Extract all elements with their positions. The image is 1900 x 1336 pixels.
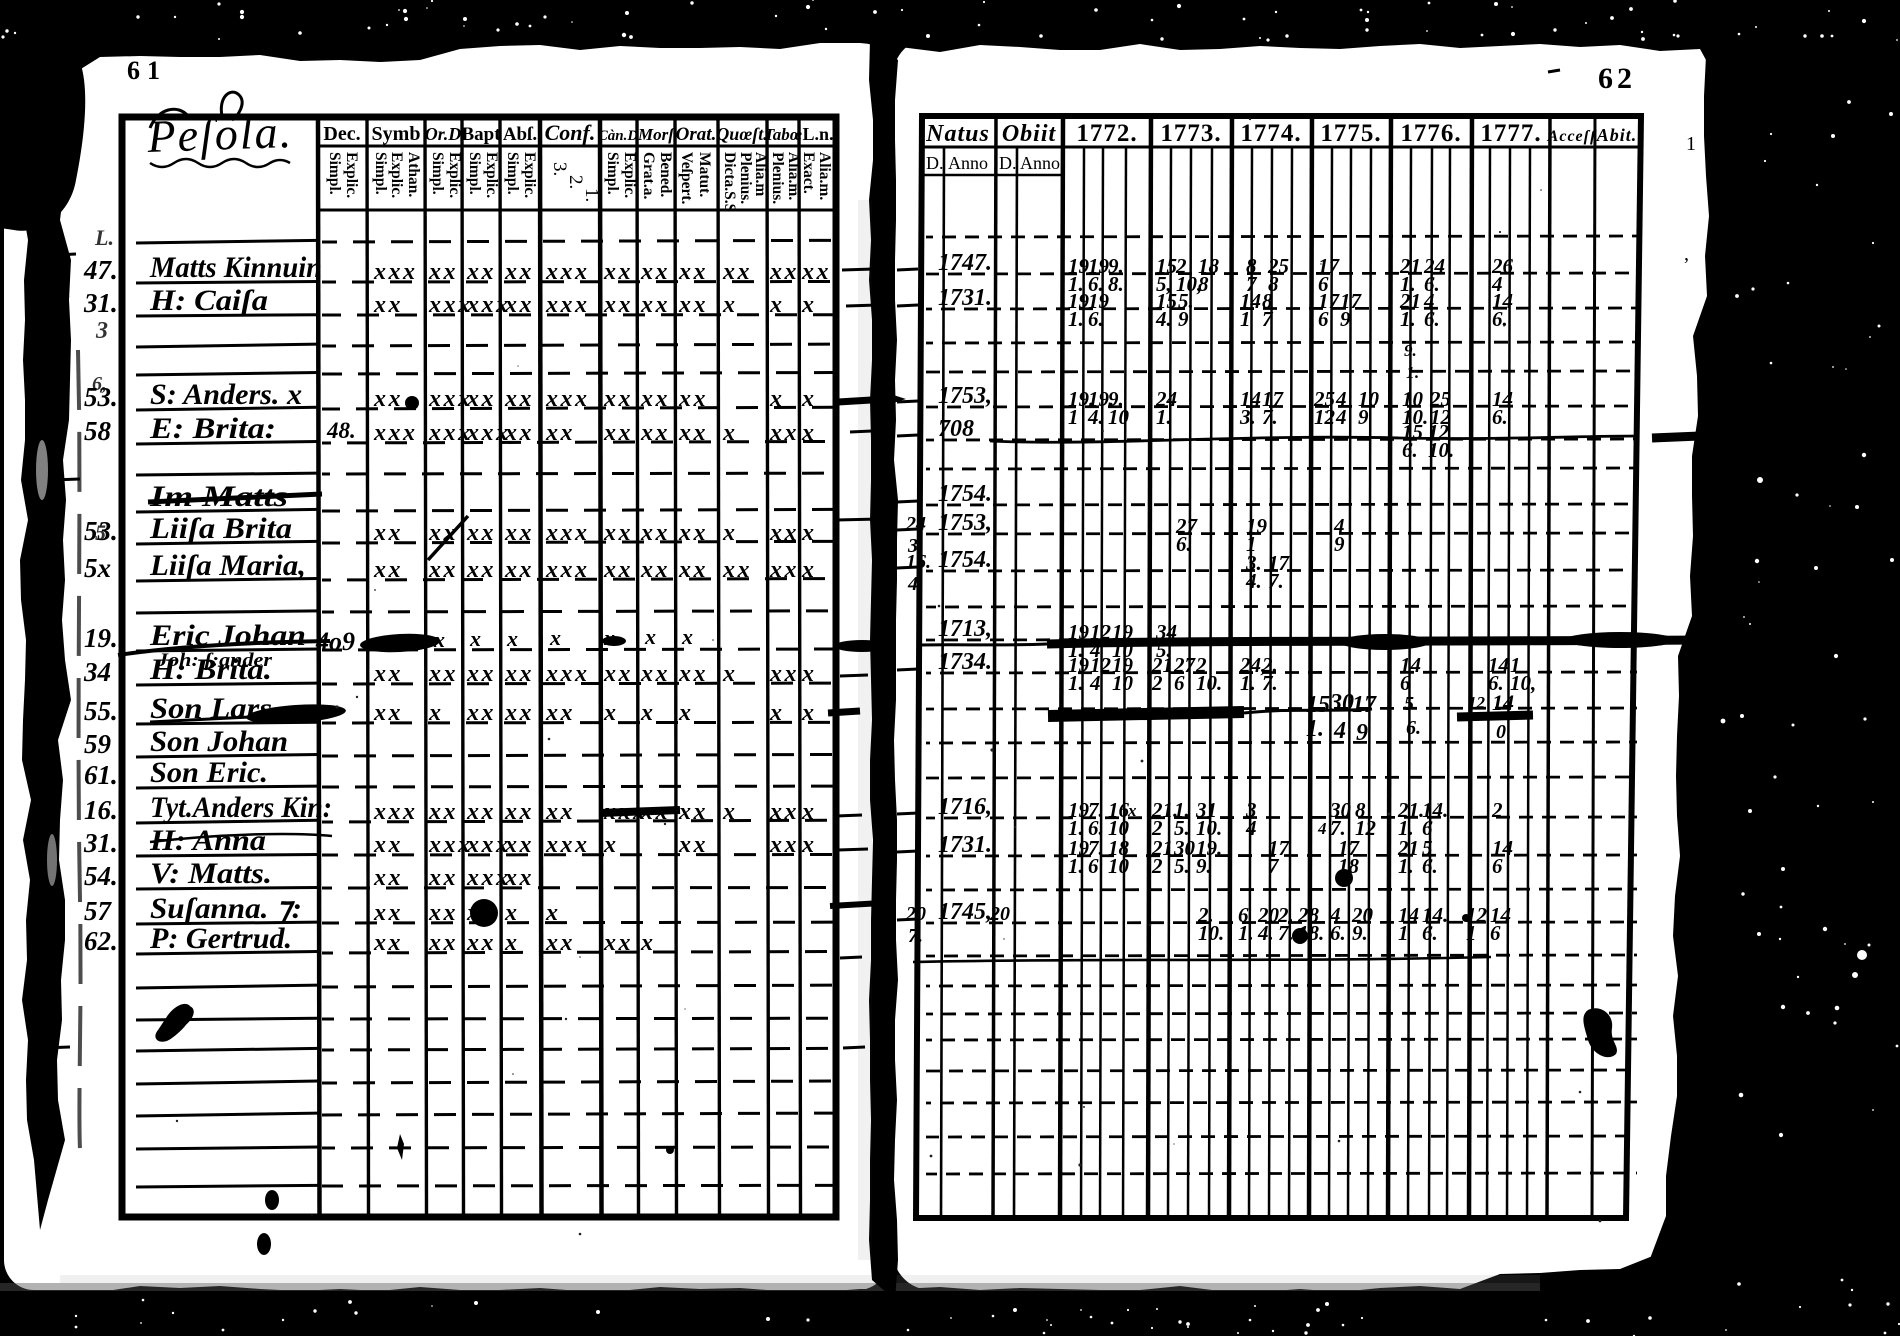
svg-text:Exact.: Exact. <box>800 152 817 194</box>
svg-text:xx: xx <box>428 557 458 583</box>
svg-text:10.: 10. <box>1196 671 1222 695</box>
svg-text:Liiſa Brita: Liiſa Brita <box>149 512 292 545</box>
svg-text:62.: 62. <box>84 926 118 956</box>
svg-text:Abit.: Abit. <box>1596 125 1638 145</box>
svg-text:D.: D. <box>926 153 944 173</box>
svg-text:x: x <box>549 625 561 650</box>
svg-text:7: 7 <box>1262 307 1274 331</box>
svg-text:Liiſa Maria,: Liiſa Maria, <box>149 549 306 582</box>
svg-text:xx: xx <box>640 292 670 318</box>
svg-text:xxx: xxx <box>545 557 590 583</box>
svg-text:x: x <box>722 420 738 446</box>
svg-text:10: 10 <box>1112 671 1134 695</box>
svg-text:30: 30 <box>1329 690 1354 716</box>
svg-text:1.: 1. <box>1238 921 1254 945</box>
svg-text:xx: xx <box>504 420 534 446</box>
svg-text:x: x <box>722 661 738 687</box>
svg-text:58: 58 <box>84 416 112 446</box>
svg-text:xx: xx <box>466 661 496 687</box>
svg-text:Matut.: Matut. <box>696 152 713 197</box>
svg-text:xx: xx <box>373 700 403 726</box>
svg-text:xxx: xxx <box>466 832 511 858</box>
svg-text:x: x <box>769 700 785 726</box>
svg-text:1:: 1: <box>1406 363 1420 382</box>
svg-text:Alia.m.: Alia.m. <box>785 152 802 200</box>
svg-text:xx: xx <box>504 700 534 726</box>
svg-text:1.: 1. <box>1068 854 1084 878</box>
svg-text:Natus: Natus <box>925 121 990 147</box>
svg-text:1.: 1. <box>1156 405 1172 429</box>
svg-text:Athan.: Athan. <box>405 152 422 197</box>
svg-text:6.: 6. <box>1406 717 1421 739</box>
svg-text:xx: xx <box>545 420 575 446</box>
svg-text:xx: xx <box>466 700 496 726</box>
svg-text:Symb: Symb <box>372 123 421 145</box>
svg-text:7.: 7. <box>1262 671 1278 695</box>
svg-text:9: 9 <box>1358 405 1369 429</box>
svg-text:P: Gertrud.: P: Gertrud. <box>149 922 292 955</box>
svg-text:Simpl.: Simpl. <box>604 152 621 195</box>
svg-text:6,: 6, <box>92 373 107 395</box>
svg-text:xx: xx <box>603 259 633 285</box>
svg-text:xx: xx <box>678 799 708 825</box>
svg-text:xxx: xxx <box>428 292 473 318</box>
svg-text:10: 10 <box>1108 405 1130 429</box>
svg-text:x: x <box>722 292 738 318</box>
svg-text:6: 6 <box>1400 671 1411 695</box>
svg-text:9: 9 <box>1340 307 1351 331</box>
svg-text:x: x <box>801 832 817 858</box>
svg-text:xxx: xxx <box>373 259 418 285</box>
svg-text:xx: xx <box>678 520 708 546</box>
svg-text:x: x <box>801 799 817 825</box>
svg-text:xx: xx <box>678 386 708 412</box>
svg-text:xx: xx <box>466 557 496 583</box>
svg-text:1: 1 <box>1068 405 1079 429</box>
svg-text:Càn.D: Càn.D <box>598 128 639 144</box>
svg-text:xx: xx <box>428 865 458 891</box>
svg-text:xx: xx <box>603 386 633 412</box>
svg-text:Bened.: Bened. <box>657 152 674 197</box>
svg-text:x: x <box>801 661 817 687</box>
svg-text:6.: 6. <box>1088 307 1104 331</box>
svg-text:xx: xx <box>504 520 534 546</box>
svg-text:xx: xx <box>373 832 403 858</box>
svg-text:xx: xx <box>769 557 799 583</box>
svg-text:4: 4 <box>57 292 70 318</box>
svg-text:xx: xx <box>640 520 670 546</box>
svg-text:x: x <box>722 520 738 546</box>
svg-text:12: 12 <box>1468 693 1486 712</box>
svg-text:xx: xx <box>603 661 633 687</box>
svg-text:31.: 31. <box>83 288 118 318</box>
svg-text:xxx: xxx <box>428 386 473 412</box>
svg-text:xx: xx <box>504 557 534 583</box>
svg-text:7: 7 <box>1268 854 1280 878</box>
svg-text:4.: 4. <box>1087 405 1104 429</box>
svg-text:8: 8 <box>1198 272 1209 296</box>
svg-text:Son Eric.: Son Eric. <box>150 756 268 789</box>
svg-text:xx: xx <box>466 799 496 825</box>
svg-text:Explic.: Explic. <box>446 152 463 198</box>
svg-text:9.: 9. <box>1196 854 1212 878</box>
svg-text:5x: 5x <box>84 553 111 583</box>
svg-text:Plenius.: Plenius. <box>737 152 754 204</box>
svg-text:57: 57 <box>84 896 113 926</box>
svg-text:2: 2 <box>1491 798 1503 822</box>
svg-text:xx: xx <box>373 292 403 318</box>
svg-text:7.: 7. <box>908 925 923 947</box>
svg-text:6.: 6. <box>1422 921 1438 945</box>
svg-text:1773.: 1773. <box>1160 120 1221 147</box>
svg-text:Abſ.: Abſ. <box>503 124 537 145</box>
svg-text:6.: 6. <box>1330 921 1346 945</box>
svg-text:x: x <box>603 700 619 726</box>
svg-text:xxx: xxx <box>545 292 590 318</box>
svg-text:9: 9 <box>1356 720 1368 746</box>
svg-text:5.: 5. <box>1174 854 1190 878</box>
svg-text:6: 6 <box>1318 307 1329 331</box>
svg-text:xx: xx <box>603 420 633 446</box>
svg-text:Anno: Anno <box>948 153 988 173</box>
svg-text:x: x <box>801 520 817 546</box>
svg-text:E: Brita:: E: Brita: <box>149 412 276 445</box>
svg-text:9.: 9. <box>1352 921 1368 945</box>
svg-text:L.: L. <box>94 225 114 250</box>
svg-text:1: 1 <box>1686 133 1696 155</box>
svg-text:6: 6 <box>1492 854 1503 878</box>
svg-text:19.: 19. <box>84 623 118 653</box>
svg-text:1754.: 1754. <box>938 481 992 507</box>
svg-text:Simpl.: Simpl. <box>504 152 521 195</box>
svg-text:xx: xx <box>504 386 534 412</box>
svg-text:8.: 8. <box>1108 272 1124 296</box>
svg-text:4: 4 <box>1333 718 1346 744</box>
svg-text:Morſ: Morſ <box>637 125 676 144</box>
svg-text:xx: xx <box>769 520 799 546</box>
svg-text:V: Matts.: V: Matts. <box>150 857 272 890</box>
svg-text:Quœſt.: Quœſt. <box>716 124 768 144</box>
svg-text:xx: xx <box>769 420 799 446</box>
svg-text:9: 9 <box>1178 307 1189 331</box>
svg-text:Orat.: Orat. <box>676 124 717 145</box>
svg-text:708: 708 <box>938 416 974 442</box>
svg-text:Peſola.: Peſola. <box>146 106 294 162</box>
svg-text:1716,: 1716, <box>938 794 992 820</box>
svg-text:5: 5 <box>1404 693 1414 715</box>
svg-text:9: 9 <box>1334 532 1345 556</box>
svg-text:1.: 1. <box>1398 854 1414 878</box>
svg-text:xx: xx <box>373 386 403 412</box>
svg-text:xx: xx <box>603 930 633 956</box>
svg-text:1713,: 1713, <box>938 616 992 642</box>
svg-text:Alia.m: Alia.m <box>752 152 769 196</box>
svg-text:x: x <box>469 626 481 651</box>
svg-text:6: 6 <box>1174 671 1185 695</box>
svg-text:xx: xx <box>603 292 633 318</box>
svg-text:x: x <box>681 624 693 649</box>
svg-text:xxx: xxx <box>428 832 473 858</box>
svg-text:xx: xx <box>504 799 534 825</box>
svg-text:59: 59 <box>84 729 112 759</box>
svg-text:7.: 7. <box>1278 921 1294 945</box>
svg-text:6.: 6. <box>1176 532 1192 556</box>
svg-text:x: x <box>769 386 785 412</box>
svg-text:xx: xx <box>640 661 670 687</box>
svg-text:31.: 31. <box>83 828 118 858</box>
svg-text:20: 20 <box>905 903 926 925</box>
svg-text:x: x <box>801 292 817 318</box>
svg-text:1777.: 1777. <box>1480 120 1541 147</box>
svg-text:xx: xx <box>504 865 534 891</box>
svg-text:Explic.: Explic. <box>483 152 500 198</box>
svg-text:Dicta.S.S: Dicta.S.S <box>721 152 738 212</box>
svg-text:Joh: ſ:ander: Joh: ſ:ander <box>156 650 273 671</box>
svg-text:Simpl.: Simpl. <box>466 152 483 195</box>
svg-text:2: 2 <box>1151 854 1163 878</box>
svg-text:L.n.: L.n. <box>802 124 833 144</box>
svg-text:Explic.: Explic. <box>388 152 405 198</box>
svg-text:xx: xx <box>466 259 496 285</box>
svg-text:1: 1 <box>1240 307 1251 331</box>
svg-text:4: 4 <box>1335 405 1347 429</box>
svg-text:xx: xx <box>373 557 403 583</box>
svg-text:1772.: 1772. <box>1076 120 1137 147</box>
svg-text:3: 3 <box>95 318 108 344</box>
svg-text:Bapt: Bapt <box>461 124 501 145</box>
svg-text:xxx: xxx <box>545 259 590 285</box>
svg-text:xx: xx <box>428 259 458 285</box>
svg-text:1747.: 1747. <box>938 250 992 276</box>
svg-text:xx: xx <box>640 259 670 285</box>
svg-text:x: x <box>1127 801 1137 820</box>
svg-text:xxx: xxx <box>545 386 590 412</box>
svg-text:1745,: 1745, <box>938 899 992 925</box>
svg-text:6.: 6. <box>1402 438 1418 462</box>
svg-text:1731.: 1731. <box>938 285 992 311</box>
svg-text:16.: 16. <box>84 795 118 825</box>
svg-text:xx: xx <box>769 259 799 285</box>
svg-text:62: 62 <box>1598 62 1636 95</box>
svg-text:xx: xx <box>640 420 670 446</box>
svg-text:47.: 47. <box>83 255 118 285</box>
svg-text:61: 61 <box>127 56 167 85</box>
svg-text:xx: xx <box>769 832 799 858</box>
svg-text:Simpl.: Simpl. <box>429 152 446 195</box>
svg-text:x: x <box>428 700 444 726</box>
svg-text:x: x <box>644 624 656 649</box>
svg-text:xx: xx <box>769 799 799 825</box>
svg-text:9.: 9. <box>1404 341 1417 360</box>
svg-text:1753,: 1753, <box>938 510 992 536</box>
svg-text:x: x <box>801 557 817 583</box>
svg-text:xx: xx <box>545 700 575 726</box>
svg-text:x: x <box>801 700 817 726</box>
svg-text:xx: xx <box>678 259 708 285</box>
svg-text:24: 24 <box>905 513 926 535</box>
svg-text:,: , <box>1684 243 1689 265</box>
svg-text:x: x <box>640 930 656 956</box>
svg-text:xxx: xxx <box>545 661 590 687</box>
svg-text:xx: xx <box>504 832 534 858</box>
svg-text:xx: xx <box>466 386 496 412</box>
svg-text:xx: xx <box>769 661 799 687</box>
svg-text:xx: xx <box>545 930 575 956</box>
svg-text:1.: 1. <box>1306 716 1324 742</box>
svg-text:Obiit: Obiit <box>1002 121 1057 147</box>
svg-text:Plenius.: Plenius. <box>769 152 786 204</box>
svg-text:xx: xx <box>801 259 831 285</box>
svg-text:H: Caiſa: H: Caiſa <box>149 284 268 317</box>
svg-text:x: x <box>722 799 738 825</box>
svg-text:Alia.m.: Alia.m. <box>816 152 833 200</box>
svg-text:Grat.a.: Grat.a. <box>640 152 657 199</box>
svg-text:17: 17 <box>1352 692 1377 718</box>
svg-text:xx: xx <box>504 259 534 285</box>
svg-text:S: Anders. x: S: Anders. x <box>150 378 302 411</box>
svg-text:0: 0 <box>1496 721 1506 743</box>
svg-text:xx: xx <box>373 900 403 926</box>
svg-text:10.: 10. <box>1428 438 1454 462</box>
svg-text:xx: xx <box>428 661 458 687</box>
svg-text:x: x <box>801 420 817 446</box>
svg-text:1.: 1. <box>1068 307 1084 331</box>
svg-text:xx: xx <box>466 520 496 546</box>
svg-text:Or.D: Or.D <box>425 124 462 144</box>
svg-text:xx: xx <box>373 865 403 891</box>
svg-text:16.: 16. <box>906 551 931 573</box>
svg-text:Veſpert.: Veſpert. <box>678 152 695 204</box>
svg-text:4: 4 <box>1089 671 1101 695</box>
svg-text:xx: xx <box>722 259 752 285</box>
svg-text:xxx: xxx <box>373 799 418 825</box>
svg-text:x: x <box>506 626 518 651</box>
svg-text:x: x <box>801 386 817 412</box>
svg-text:7.: 7. <box>1268 569 1284 593</box>
svg-text:x: x <box>545 900 561 926</box>
svg-text:xx: xx <box>373 661 403 687</box>
svg-text:6.: 6. <box>1424 307 1440 331</box>
svg-text:4.: 4. <box>1257 921 1274 945</box>
svg-text:7.: 7. <box>1262 405 1278 429</box>
svg-text:Explic.: Explic. <box>343 152 360 198</box>
svg-text:4.: 4. <box>907 573 923 595</box>
svg-text:34: 34 <box>83 657 111 687</box>
svg-text:x: x <box>769 292 785 318</box>
svg-text:1754.: 1754. <box>938 547 992 573</box>
svg-text:xx: xx <box>722 557 752 583</box>
svg-text:x: x <box>640 700 656 726</box>
svg-text:3.: 3. <box>1239 405 1256 429</box>
svg-text:6.: 6. <box>1422 854 1438 878</box>
svg-text:1.: 1. <box>1400 307 1416 331</box>
svg-text:1734.: 1734. <box>938 649 992 675</box>
svg-text:Son Johan: Son Johan <box>150 725 288 758</box>
svg-text:Acceſſ: Acceſſ <box>1547 128 1597 145</box>
svg-text:10.: 10. <box>1198 921 1224 945</box>
svg-text:xx: xx <box>640 557 670 583</box>
svg-text:xx: xx <box>640 386 670 412</box>
svg-text:xx: xx <box>373 520 403 546</box>
svg-text:6.: 6. <box>1492 307 1508 331</box>
svg-text:6: 6 <box>1088 854 1099 878</box>
svg-text:54.: 54. <box>84 861 118 891</box>
svg-text:xx: xx <box>428 900 458 926</box>
svg-text:x: x <box>504 900 520 926</box>
svg-text:61.: 61. <box>84 760 118 790</box>
svg-text:xxx: xxx <box>545 832 590 858</box>
svg-text:1.: 1. <box>1068 671 1084 695</box>
svg-text:4: 4 <box>1245 816 1257 840</box>
svg-text:xx: xx <box>603 520 633 546</box>
svg-text:4.: 4. <box>1155 307 1172 331</box>
svg-text:xxx: xxx <box>466 292 511 318</box>
svg-text:1731.: 1731. <box>938 832 992 858</box>
svg-text:D.: D. <box>999 153 1017 173</box>
svg-text:55.: 55. <box>84 696 118 726</box>
svg-text:1774.: 1774. <box>1240 120 1301 147</box>
svg-text:xx: xx <box>428 930 458 956</box>
svg-text:xx: xx <box>678 292 708 318</box>
svg-text:x: x <box>504 930 520 956</box>
svg-text:xxx: xxx <box>466 865 511 891</box>
svg-text:xx: xx <box>678 557 708 583</box>
svg-text:1753,: 1753, <box>938 383 992 409</box>
svg-text:x: x <box>678 700 694 726</box>
svg-text:10: 10 <box>1108 854 1130 878</box>
svg-text:xxx: xxx <box>428 420 473 446</box>
svg-text:1.: 1. <box>1240 671 1256 695</box>
svg-text:Anno: Anno <box>1020 153 1060 173</box>
svg-text:48.: 48. <box>326 418 356 443</box>
svg-text:Simpl.: Simpl. <box>326 152 343 195</box>
svg-text:Explic.: Explic. <box>521 152 538 198</box>
svg-text:1775.: 1775. <box>1320 120 1381 147</box>
svg-text:xx: xx <box>428 799 458 825</box>
svg-text:4o9: 4o9 <box>315 627 355 656</box>
svg-text:20: 20 <box>989 903 1010 925</box>
svg-text:15: 15 <box>1306 692 1330 718</box>
svg-text:Suſanna. ⁊:: Suſanna. ⁊: <box>150 892 302 925</box>
svg-text:xx: xx <box>504 661 534 687</box>
svg-text:Dec.: Dec. <box>323 123 360 145</box>
svg-text:1776.: 1776. <box>1400 120 1461 147</box>
svg-text:4: 4 <box>1317 819 1327 838</box>
svg-text:xx: xx <box>466 930 496 956</box>
svg-text:Matts Kinnuin: Matts Kinnuin <box>149 251 322 284</box>
svg-text:xx: xx <box>603 557 633 583</box>
svg-text:1: 1 <box>1466 921 1477 945</box>
svg-text:xxx: xxx <box>373 420 418 446</box>
svg-text:Conf.: Conf. <box>545 120 596 145</box>
svg-text:Tyt.Anders Kin:: Tyt.Anders Kin: <box>150 791 332 824</box>
svg-text:Explic.: Explic. <box>621 152 638 198</box>
svg-text:2: 2 <box>1151 671 1163 695</box>
svg-text:5: 5 <box>95 520 106 545</box>
svg-text:xxx: xxx <box>466 420 511 446</box>
svg-text:xx: xx <box>678 420 708 446</box>
svg-text:xx: xx <box>678 661 708 687</box>
svg-text:x: x <box>603 832 619 858</box>
svg-text:12: 12 <box>1314 405 1336 429</box>
svg-text:1.: 1. <box>581 188 602 202</box>
svg-text:xx: xx <box>545 799 575 825</box>
svg-text:Tabœ: Tabœ <box>764 125 802 144</box>
svg-text:Simpl.: Simpl. <box>372 152 389 195</box>
svg-text:6: 6 <box>1490 921 1501 945</box>
svg-text:xx: xx <box>504 292 534 318</box>
svg-text:xx: xx <box>678 832 708 858</box>
